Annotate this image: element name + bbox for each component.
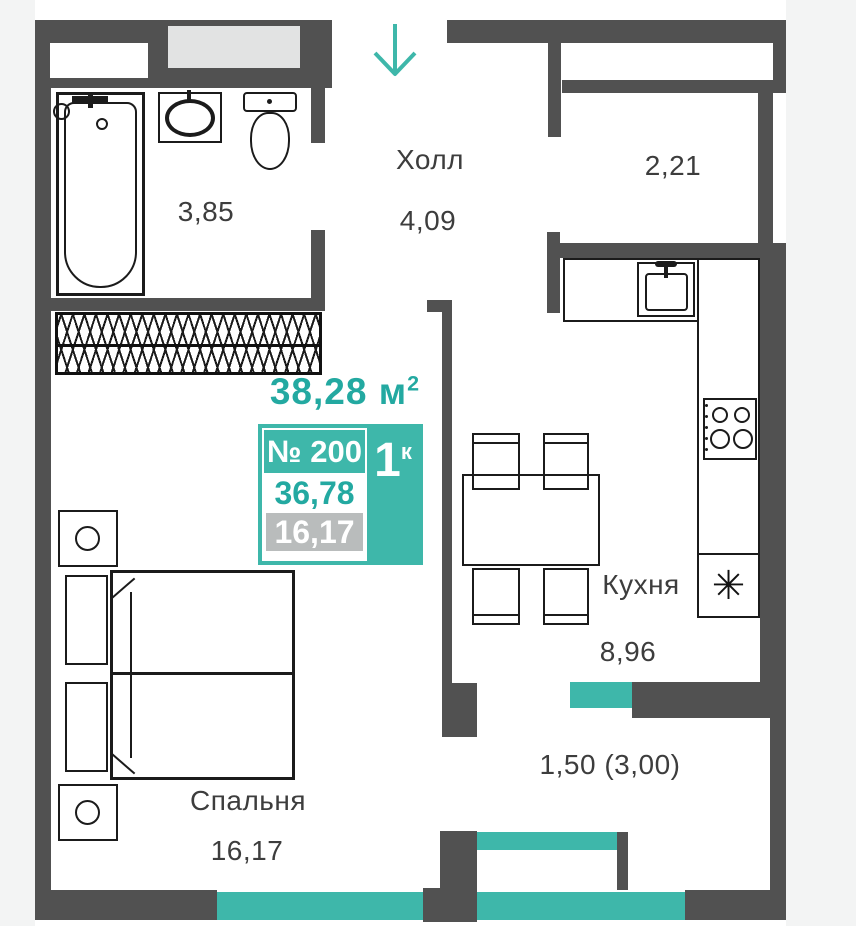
stove: [703, 398, 757, 460]
wall-kitchen-right-exterior: [760, 243, 786, 716]
wall-hall-storage: [548, 20, 561, 137]
kitchen-area: 8,96: [600, 636, 657, 668]
window-bedroom: [217, 892, 423, 920]
unit-number: № 200: [264, 430, 365, 473]
fridge-icon: ✳: [697, 553, 760, 618]
bath-sink-basin: [165, 99, 215, 137]
wall-niche: [50, 43, 148, 78]
bed-blanket-edge: [130, 592, 132, 758]
dining-table: [462, 474, 600, 566]
stove-burner: [733, 429, 753, 449]
hall-label: Холл: [396, 144, 464, 176]
duct-shaft: [168, 26, 300, 68]
pillow-bottom: [65, 682, 108, 772]
wall-divider-foot: [442, 683, 477, 737]
stove-burner: [712, 407, 728, 423]
bathtub-drain-left: [53, 103, 70, 120]
wall-hall-kitchen: [547, 258, 560, 313]
page-right-margin: [786, 0, 856, 926]
wall-balcony-pillar: [440, 831, 477, 922]
toilet-button: [267, 99, 272, 104]
nightstand-bottom-lamp: [75, 800, 100, 825]
floor-plan: ✳ Холл 4,09 3,85 2,21 Кухня 8,96 Спальня…: [0, 0, 856, 926]
wall-storage-right: [758, 93, 773, 243]
total-area-title: 38,28 м2: [172, 371, 420, 413]
unit-card[interactable]: № 200 36,78 16,17 1к: [258, 424, 423, 565]
bathroom-area: 3,85: [178, 196, 235, 228]
wall-top-right-exterior: [447, 20, 786, 43]
stove-burner: [734, 407, 750, 423]
window-balcony-rail: [477, 892, 685, 920]
unit-rooms-badge: 1к: [367, 428, 419, 561]
wall-bathroom-hall-upper: [311, 43, 325, 143]
wall-storage-niche-bottom: [562, 80, 773, 93]
chair: [543, 568, 589, 625]
window-kitchen-balcony: [570, 682, 632, 708]
wall-bottom-right: [685, 890, 772, 920]
wall-balcony-post: [617, 832, 628, 890]
bathtub-mixer: [88, 94, 93, 108]
chair: [472, 568, 520, 625]
page-left-margin: [0, 0, 35, 926]
wall-living-kitchen-divider: [442, 300, 452, 683]
balcony-area: 1,50 (3,00): [540, 749, 681, 781]
storage-area: 2,21: [645, 150, 702, 182]
window-balcony-door: [477, 832, 617, 850]
wall-left-exterior: [35, 20, 51, 920]
bed-mattress-divider: [113, 672, 292, 675]
unit-total-area: 36,78: [264, 473, 365, 513]
unit-rooms-count: 1к: [374, 437, 412, 561]
wardrobe: [55, 312, 322, 375]
toilet-bowl: [250, 112, 290, 170]
wall-bathroom-bottom: [35, 298, 323, 311]
unit-card-left: № 200 36,78 16,17: [262, 428, 367, 561]
total-area-unit: м: [379, 371, 407, 412]
wall-bottom-left: [35, 890, 217, 920]
wall-balcony-top: [632, 682, 772, 718]
kitchen-sink-mixer: [655, 261, 677, 267]
pillow-top: [65, 575, 108, 665]
unit-living-area: 16,17: [266, 513, 363, 551]
stove-burner: [710, 429, 730, 449]
wall-top-right-corner: [773, 20, 786, 93]
bed: [110, 570, 295, 780]
nightstand-top-lamp: [75, 526, 100, 551]
bedroom-label: Спальня: [190, 785, 306, 817]
kitchen-label: Кухня: [602, 569, 679, 601]
total-area-sup: 2: [407, 372, 420, 396]
entrance-arrow-icon: [371, 22, 419, 82]
bedroom-area: 16,17: [211, 835, 284, 867]
wall-right-lower-exterior: [770, 716, 786, 920]
hall-area: 4,09: [400, 205, 457, 237]
total-area-value: 38,28: [270, 371, 368, 412]
kitchen-sink-basin: [645, 273, 688, 311]
wardrobe-rail: [58, 344, 319, 347]
bath-sink-faucet: [187, 90, 191, 103]
bathtub-drain: [96, 118, 108, 130]
wall-storage-bottom: [547, 243, 773, 258]
